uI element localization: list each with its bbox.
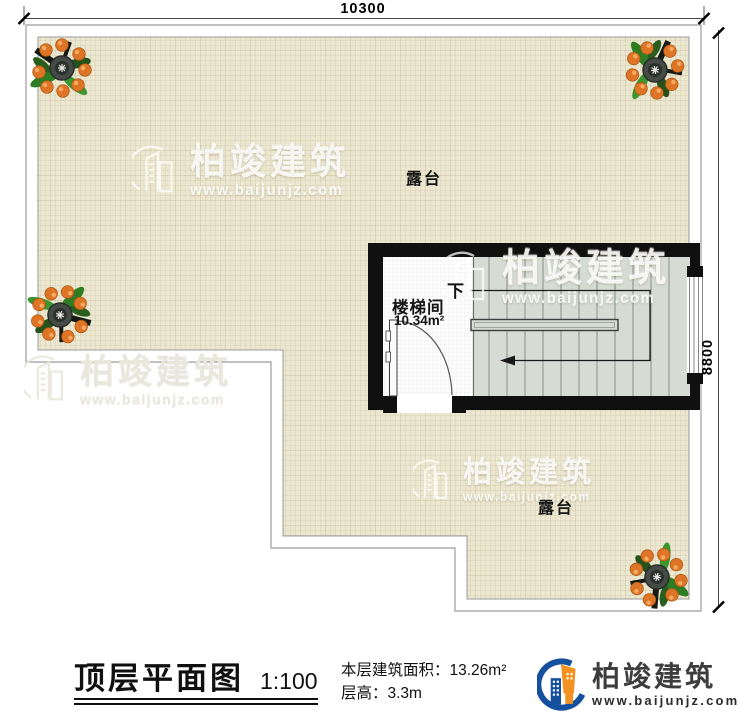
terrace-label-upper: 露台	[402, 165, 446, 189]
floor-plan-page: 柏竣建筑 www.baijunjz.com 柏竣建筑 www.baijunjz.…	[0, 0, 750, 727]
brand-logo: 柏竣建筑 www.baijunjz.com	[537, 657, 739, 713]
brand-logo-icon	[537, 657, 585, 713]
floor-area-text: 本层建筑面积：13.26m²	[341, 659, 506, 682]
staircase-block	[368, 243, 703, 413]
floor-info: 本层建筑面积：13.26m² 层高：3.3m	[341, 659, 506, 706]
dimension-right-label: 8800	[700, 332, 718, 382]
dimension-top-label: 10300	[323, 1, 403, 17]
terrace-label-lower: 露台	[534, 494, 578, 518]
drawing-scale: 1:100	[260, 669, 318, 694]
stair-down-label: 下	[447, 277, 464, 302]
floor-plan-drawing	[0, 0, 750, 727]
page-title: 顶层平面图	[74, 663, 244, 694]
title-block: 顶层平面图 1:100	[74, 663, 318, 700]
stair-room-area: 10.34m²	[394, 313, 444, 328]
stair-handrail	[471, 320, 618, 331]
floor-height-text: 层高：3.3m	[341, 682, 506, 705]
brand-name: 柏竣建筑	[592, 663, 739, 691]
brand-site: www.baijunjz.com	[592, 694, 739, 707]
